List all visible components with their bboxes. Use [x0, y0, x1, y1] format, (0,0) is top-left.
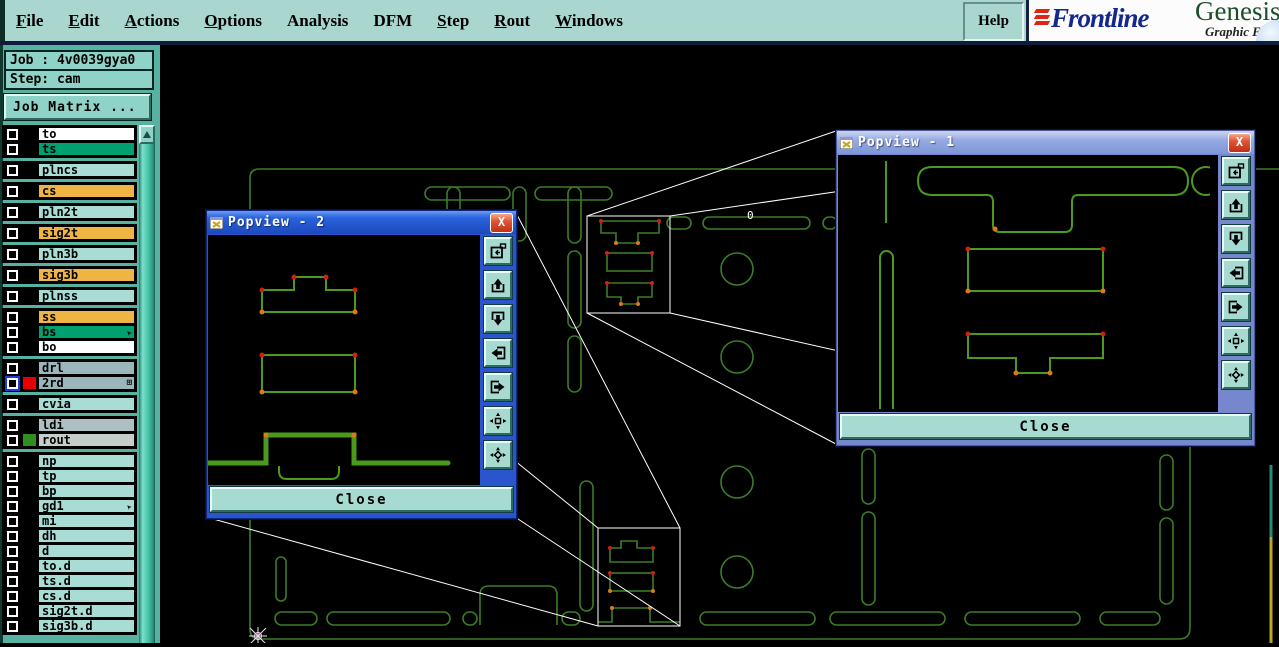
layer-group: ssbs➤bo [2, 308, 137, 356]
layer-row-mi[interactable]: mi [4, 514, 135, 528]
layer-name-label[interactable]: cs [38, 184, 135, 198]
layer-name-label[interactable]: bo [38, 340, 135, 354]
layer-name-label[interactable]: ss [38, 310, 135, 324]
window-icon [210, 217, 223, 229]
pan-right-icon[interactable] [484, 373, 512, 401]
layer-name-label[interactable]: d [38, 544, 135, 558]
pan-up-icon[interactable] [1222, 191, 1250, 219]
layer-name-label[interactable]: sig3b [38, 268, 135, 282]
zoom-extents-icon[interactable] [484, 407, 512, 435]
menu-item-edit[interactable]: Edit [68, 11, 99, 31]
layer-name-label[interactable]: dh [38, 529, 135, 543]
layer-row-pln3b[interactable]: pln3b [4, 247, 135, 261]
layer-color-swatch[interactable] [23, 545, 36, 557]
layer-visibility-checkbox[interactable] [7, 399, 18, 410]
layer-color-swatch[interactable] [23, 290, 36, 302]
layer-color-swatch[interactable] [23, 248, 36, 260]
layer-visibility-checkbox[interactable] [7, 312, 18, 323]
layer-name-label[interactable]: pln3b [38, 247, 135, 261]
layer-row-ts[interactable]: ts [4, 142, 135, 156]
layer-color-swatch[interactable] [23, 206, 36, 218]
close-icon[interactable]: X [1228, 133, 1251, 153]
layer-group: tots [2, 125, 137, 158]
popview-2-titlebar[interactable]: Popview - 2 X [207, 211, 516, 234]
menu-item-options[interactable]: Options [204, 11, 262, 31]
menu-item-help[interactable]: Help [963, 2, 1024, 41]
cursor-arrow-icon: ➤ [123, 500, 135, 512]
layer-group: ldirout [2, 416, 137, 449]
popview-1-titlebar[interactable]: Popview - 1 X [837, 131, 1254, 154]
layer-row-cvia[interactable]: cvia [4, 397, 135, 411]
layer-row-2rd[interactable]: 2rd⊞ [4, 376, 135, 390]
layer-color-swatch[interactable] [23, 575, 36, 587]
layer-name-label[interactable]: ts [38, 142, 135, 156]
layer-color-swatch[interactable] [23, 143, 36, 155]
layer-group: plnss [2, 287, 137, 305]
pan-left-icon[interactable] [484, 339, 512, 367]
popview-1-window[interactable]: Popview - 1 X [836, 130, 1255, 446]
layer-name-label[interactable]: mi [38, 514, 135, 528]
layer-color-swatch[interactable] [23, 398, 36, 410]
layer-visibility-checkbox[interactable] [7, 129, 18, 140]
zoom-extents-icon[interactable] [1222, 327, 1250, 355]
layer-row-bs[interactable]: bs➤ [4, 325, 135, 339]
popview-1-canvas[interactable] [838, 155, 1218, 412]
popview-2-canvas[interactable] [208, 235, 480, 485]
layer-visibility-checkbox[interactable] [7, 531, 18, 542]
sidebar: Job : 4v0039gya0 Step: cam Job Matrix ..… [0, 45, 160, 643]
layer-visibility-checkbox[interactable] [7, 363, 18, 374]
layer-row-drl[interactable]: drl [4, 361, 135, 375]
pan-left-icon[interactable] [1222, 259, 1250, 287]
layer-visibility-checkbox[interactable] [7, 576, 18, 587]
layer-row-bo[interactable]: bo [4, 340, 135, 354]
layer-list-scrollbar[interactable] [139, 125, 155, 643]
menu-item-step[interactable]: Step [437, 11, 469, 31]
layer-visibility-checkbox[interactable] [7, 546, 18, 557]
layer-color-swatch[interactable] [23, 377, 36, 389]
layer-name-label[interactable]: bp [38, 484, 135, 498]
layer-color-swatch[interactable] [23, 470, 36, 482]
layer-name-label[interactable]: bs➤ [38, 325, 135, 339]
layer-color-swatch[interactable] [23, 590, 36, 602]
center-view-icon[interactable] [484, 441, 512, 469]
layer-color-swatch[interactable] [23, 164, 36, 176]
layer-name-label[interactable]: sig2t [38, 226, 135, 240]
layer-name-label[interactable]: ts.d [38, 574, 135, 588]
layer-name-label[interactable]: to.d [38, 559, 135, 573]
popview-2-title: Popview - 2 [228, 215, 485, 230]
popview-1-title: Popview - 1 [858, 135, 1223, 150]
highlight-dots-red [599, 219, 661, 575]
layer-color-swatch[interactable] [23, 605, 36, 617]
pan-up-icon[interactable] [484, 271, 512, 299]
layer-name-label[interactable]: drl [38, 361, 135, 375]
layer-name-label[interactable]: ldi [38, 418, 135, 432]
layer-visibility-checkbox[interactable] [7, 420, 18, 431]
layer-color-swatch[interactable] [23, 185, 36, 197]
layer-color-swatch[interactable] [23, 341, 36, 353]
menu-item-windows[interactable]: Windows [555, 11, 623, 31]
layer-visibility-checkbox[interactable] [7, 186, 18, 197]
layer-visibility-checkbox[interactable] [7, 606, 18, 617]
layer-name-label[interactable]: sig3b.d [38, 619, 135, 633]
layer-row-rout[interactable]: rout [4, 433, 135, 447]
window-icon [840, 137, 853, 149]
step-name: Step: cam [6, 69, 152, 88]
product-subtitle: Graphic E [1205, 24, 1261, 40]
menu-item-analysis[interactable]: Analysis [287, 11, 348, 31]
popview-2-toolbar [480, 235, 516, 485]
layer-row-to.d[interactable]: to.d [4, 559, 135, 573]
layer-group: nptpbpgd1➤midhdto.dts.dcs.dsig2t.dsig3b.… [2, 452, 137, 635]
layer-group: sig2t [2, 224, 137, 242]
layer-color-swatch[interactable] [23, 269, 36, 281]
layer-color-swatch[interactable] [23, 128, 36, 140]
layer-name-label[interactable]: pln2t [38, 205, 135, 219]
layer-row-dh[interactable]: dh [4, 529, 135, 543]
layer-visibility-checkbox[interactable] [7, 378, 18, 389]
layer-row-bp[interactable]: bp [4, 484, 135, 498]
scroll-up-arrow-icon[interactable] [139, 125, 155, 144]
layer-row-plncs[interactable]: plncs [4, 163, 135, 177]
layer-row-sig2t[interactable]: sig2t [4, 226, 135, 240]
layer-color-swatch[interactable] [23, 500, 36, 512]
frontline-logo-icon [1035, 9, 1049, 27]
layer-name-label[interactable]: tp [38, 469, 135, 483]
window-edge [0, 0, 5, 41]
layer-group: pln2t [2, 203, 137, 221]
grid-icon: ⊞ [127, 377, 132, 389]
layer-group: cs [2, 182, 137, 200]
layer-name-label[interactable]: np [38, 454, 135, 468]
layer-visibility-checkbox[interactable] [7, 501, 18, 512]
layer-row-sig3b.d[interactable]: sig3b.d [4, 619, 135, 633]
layer-name-label[interactable]: rout [38, 433, 135, 447]
popview-source-rect-1[interactable] [587, 216, 670, 313]
layer-visibility-checkbox[interactable] [7, 621, 18, 632]
job-matrix-button[interactable]: Job Matrix ... [4, 94, 151, 120]
layer-row-cs[interactable]: cs [4, 184, 135, 198]
popview-1-close-button[interactable]: Close [840, 414, 1251, 439]
layer-row-d[interactable]: d [4, 544, 135, 558]
layer-group: plncs [2, 161, 137, 179]
layer-row-sig3b[interactable]: sig3b [4, 268, 135, 282]
layer-visibility-checkbox[interactable] [7, 144, 18, 155]
layer-visibility-checkbox[interactable] [7, 591, 18, 602]
pan-down-icon[interactable] [1222, 225, 1250, 253]
layer-name-label[interactable]: cvia [38, 397, 135, 411]
layer-visibility-checkbox[interactable] [7, 291, 18, 302]
layer-list: totsplncscspln2tsig2tpln3bsig3bplnssssbs… [2, 125, 137, 638]
layer-visibility-checkbox[interactable] [7, 228, 18, 239]
layer-visibility-checkbox[interactable] [7, 207, 18, 218]
main-menu: FileEditActionsOptionsAnalysisDFMStepRou… [16, 0, 623, 41]
layer-group: drl2rd⊞ [2, 359, 137, 392]
layer-visibility-checkbox[interactable] [7, 456, 18, 467]
layer-group: cvia [2, 395, 137, 413]
layer-color-swatch[interactable] [23, 530, 36, 542]
canvas-annotation: 0 [747, 209, 754, 222]
layer-color-swatch[interactable] [23, 311, 36, 323]
layer-visibility-checkbox[interactable] [7, 342, 18, 353]
layer-row-ss[interactable]: ss [4, 310, 135, 324]
layer-row-ts.d[interactable]: ts.d [4, 574, 135, 588]
cursor-arrow-icon: ➤ [123, 326, 135, 338]
prev-view-icon[interactable] [1222, 157, 1250, 185]
layer-color-swatch[interactable] [23, 227, 36, 239]
job-name: Job : 4v0039gya0 [6, 52, 152, 69]
layer-row-ldi[interactable]: ldi [4, 418, 135, 432]
menu-item-rout[interactable]: Rout [494, 11, 530, 31]
layer-group: pln3b [2, 245, 137, 263]
brand-panel: Frontline Genesis Graphic E [1026, 0, 1279, 41]
pan-down-icon[interactable] [484, 305, 512, 333]
layer-visibility-checkbox[interactable] [7, 270, 18, 281]
layer-name-label[interactable]: plncs [38, 163, 135, 177]
layer-name-label[interactable]: plnss [38, 289, 135, 303]
prev-view-icon[interactable] [484, 237, 512, 265]
menu-item-file[interactable]: File [16, 11, 43, 31]
scrollbar-thumb[interactable] [139, 144, 155, 643]
layer-visibility-checkbox[interactable] [7, 561, 18, 572]
layer-visibility-checkbox[interactable] [7, 165, 18, 176]
layer-name-label[interactable]: sig2t.d [38, 604, 135, 618]
popview-1-toolbar [1218, 155, 1254, 412]
layer-color-swatch[interactable] [23, 620, 36, 632]
menu-item-actions[interactable]: Actions [125, 11, 180, 31]
center-view-icon[interactable] [1222, 361, 1250, 389]
layer-name-label[interactable]: to [38, 127, 135, 141]
help-label: Help [978, 13, 1009, 30]
layer-visibility-checkbox[interactable] [7, 486, 18, 497]
layer-name-label[interactable]: gd1➤ [38, 499, 135, 513]
popview-2-window[interactable]: Popview - 2 X [206, 210, 517, 519]
layer-visibility-checkbox[interactable] [7, 249, 18, 260]
layer-row-sig2t.d[interactable]: sig2t.d [4, 604, 135, 618]
layer-color-swatch[interactable] [23, 485, 36, 497]
layer-color-swatch[interactable] [23, 362, 36, 374]
layer-color-swatch[interactable] [23, 326, 36, 338]
layer-visibility-checkbox[interactable] [7, 435, 18, 446]
menu-bar: FileEditActionsOptionsAnalysisDFMStepRou… [0, 0, 1279, 41]
frontline-logo: Frontline [1051, 3, 1149, 34]
close-icon[interactable]: X [490, 213, 513, 233]
layer-visibility-checkbox[interactable] [7, 327, 18, 338]
layer-row-pln2t[interactable]: pln2t [4, 205, 135, 219]
pan-right-icon[interactable] [1222, 293, 1250, 321]
layer-group: sig3b [2, 266, 137, 284]
layer-row-gd1[interactable]: gd1➤ [4, 499, 135, 513]
layer-row-plnss[interactable]: plnss [4, 289, 135, 303]
layer-color-swatch[interactable] [23, 434, 36, 446]
layer-row-np[interactable]: np [4, 454, 135, 468]
layer-name-label[interactable]: cs.d [38, 589, 135, 603]
layer-color-swatch[interactable] [23, 419, 36, 431]
layer-visibility-checkbox[interactable] [7, 516, 18, 527]
layer-row-to[interactable]: to [4, 127, 135, 141]
layer-row-cs.d[interactable]: cs.d [4, 589, 135, 603]
layer-color-swatch[interactable] [23, 515, 36, 527]
layer-color-swatch[interactable] [23, 455, 36, 467]
layer-row-tp[interactable]: tp [4, 469, 135, 483]
layer-visibility-checkbox[interactable] [7, 471, 18, 482]
job-info-panel: Job : 4v0039gya0 Step: cam [4, 50, 154, 90]
layer-name-label[interactable]: 2rd⊞ [38, 376, 135, 390]
layer-color-swatch[interactable] [23, 560, 36, 572]
popview-2-close-button[interactable]: Close [210, 487, 513, 512]
menu-item-dfm[interactable]: DFM [373, 11, 412, 31]
